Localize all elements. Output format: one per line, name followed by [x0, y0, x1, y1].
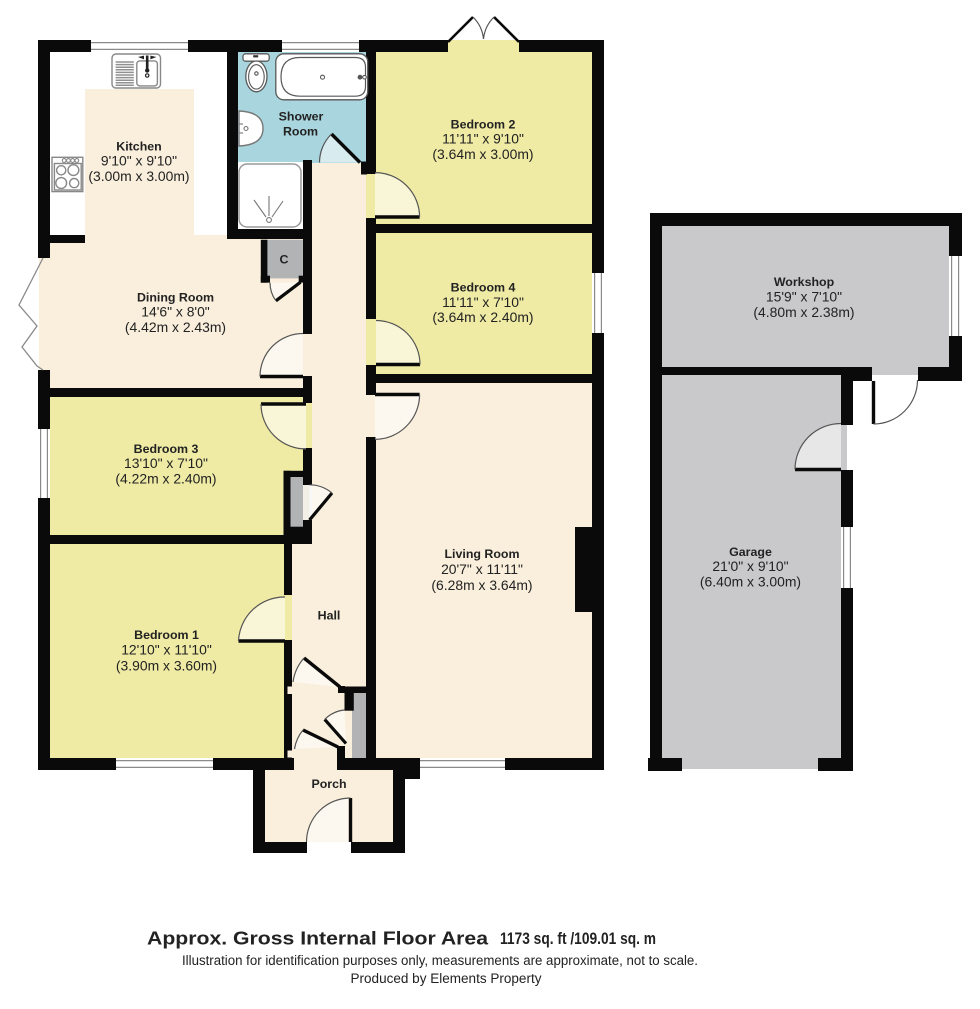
svg-text:(4.42m x 2.43m): (4.42m x 2.43m) — [125, 319, 226, 335]
svg-text:(6.40m x 3.00m): (6.40m x 3.00m) — [700, 573, 801, 589]
svg-text:Shower: Shower — [279, 110, 324, 124]
svg-text:(6.28m x 3.64m): (6.28m x 3.64m) — [431, 577, 532, 593]
svg-text:Bedroom 3: Bedroom 3 — [134, 442, 199, 456]
svg-text:20'7" x 11'11": 20'7" x 11'11" — [441, 561, 523, 577]
svg-text:C: C — [280, 253, 289, 267]
svg-text:Porch: Porch — [311, 777, 346, 791]
svg-text:(3.90m x 3.60m): (3.90m x 3.60m) — [116, 657, 217, 673]
svg-text:21'0" x 9'10": 21'0" x 9'10" — [712, 558, 788, 574]
svg-text:Hall: Hall — [318, 608, 341, 622]
svg-text:11'11" x 7'10": 11'11" x 7'10" — [442, 294, 524, 310]
svg-text:14'6" x 8'0": 14'6" x 8'0" — [141, 304, 210, 320]
svg-text:Room: Room — [283, 124, 318, 138]
svg-text:Dining Room: Dining Room — [137, 291, 214, 305]
svg-text:11'11" x 9'10": 11'11" x 9'10" — [442, 131, 524, 147]
svg-text:(4.80m x 2.38m): (4.80m x 2.38m) — [753, 304, 854, 320]
svg-text:Living Room: Living Room — [444, 547, 519, 561]
svg-text:9'10" x 9'10": 9'10" x 9'10" — [101, 153, 177, 169]
svg-text:15'9" x 7'10": 15'9" x 7'10" — [766, 288, 842, 304]
svg-text:Approx. Gross Internal Floor A: Approx. Gross Internal Floor Area — [147, 928, 489, 949]
svg-text:Garage: Garage — [729, 545, 772, 559]
svg-text:Workshop: Workshop — [774, 275, 835, 289]
svg-text:(4.22m x 2.40m): (4.22m x 2.40m) — [115, 471, 216, 487]
svg-text:13'10" x 7'10": 13'10" x 7'10" — [124, 455, 208, 471]
svg-text:(3.00m x 3.00m): (3.00m x 3.00m) — [88, 168, 189, 184]
svg-text:Kitchen: Kitchen — [116, 139, 161, 153]
svg-text:Produced by Elements Property: Produced by Elements Property — [351, 971, 542, 986]
svg-text:Illustration for identificatio: Illustration for identification purposes… — [182, 953, 698, 968]
svg-text:Bedroom 4: Bedroom 4 — [451, 281, 516, 295]
svg-text:Bedroom 1: Bedroom 1 — [134, 628, 199, 642]
svg-text:1173 sq. ft /109.01 sq. m: 1173 sq. ft /109.01 sq. m — [500, 930, 656, 948]
svg-text:(3.64m x 3.00m): (3.64m x 3.00m) — [432, 146, 533, 162]
svg-text:Bedroom 2: Bedroom 2 — [451, 117, 516, 131]
svg-text:12'10" x 11'10": 12'10" x 11'10" — [121, 642, 212, 658]
svg-text:(3.64m x 2.40m): (3.64m x 2.40m) — [432, 309, 533, 325]
